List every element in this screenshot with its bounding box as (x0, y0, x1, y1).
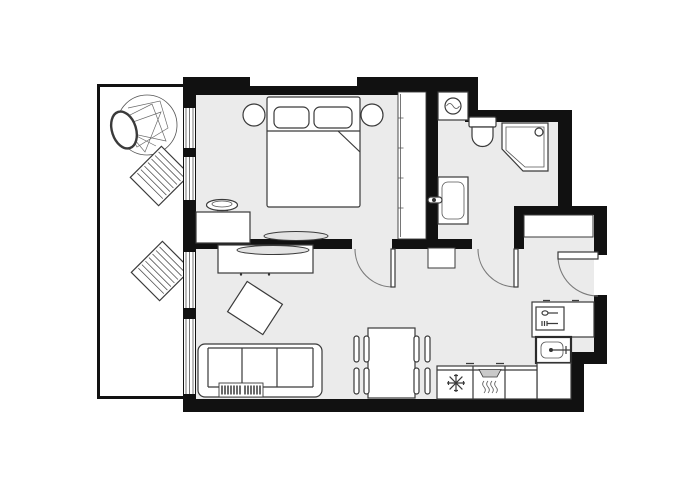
shoe-cabinet (428, 248, 455, 268)
wall-right-step (571, 352, 607, 364)
wall-top-1 (183, 77, 250, 95)
wall-bottom (183, 399, 584, 412)
potted-tree (107, 95, 177, 155)
hall-cabinet (524, 215, 593, 237)
counter-right (537, 363, 571, 399)
wall-right-above-entry (594, 215, 607, 255)
wall-bathroom-west (426, 92, 438, 244)
wall-top-2 (250, 86, 357, 95)
bedside-lamp-left (243, 104, 265, 126)
sun-lounger-top (130, 146, 189, 205)
bedside-lamp-right (361, 104, 383, 126)
wall-right-lower (571, 364, 584, 400)
wall-jamb-block (514, 208, 524, 249)
bedroom-tv (264, 232, 328, 241)
balcony-balustrade (97, 86, 183, 399)
bedroom-door-leaf (391, 249, 395, 287)
washing-machine (438, 92, 468, 120)
window-mullion (184, 308, 195, 319)
wall-right-below-entry (594, 295, 607, 352)
extractor-hood (479, 370, 501, 378)
window-mullion (184, 148, 195, 157)
sun-lounger-bottom (131, 241, 190, 300)
dresser (196, 212, 250, 243)
wall-right-upper (558, 110, 572, 212)
dishwasher-unit (532, 301, 594, 338)
fridge-freezer-icon (447, 374, 465, 392)
bedroom-window (184, 108, 195, 200)
pillow-left (274, 107, 309, 128)
entrance-door-leaf (558, 252, 598, 259)
living-window (184, 252, 195, 394)
living-tv (237, 246, 309, 255)
radiator (219, 383, 263, 397)
kitchen-sink (536, 337, 571, 363)
pillow-right (314, 107, 352, 128)
counter-bottom (437, 364, 537, 400)
wall-hall-top (514, 206, 607, 215)
bathroom-door-opening (472, 239, 514, 249)
dining-table (368, 328, 415, 398)
floor-plan-canvas (0, 0, 700, 500)
built-in-wardrobe (398, 92, 426, 239)
plant-decor (207, 200, 238, 211)
bathroom-door-leaf (514, 249, 518, 287)
bedroom-door-opening (352, 239, 393, 249)
balcony (97, 86, 191, 399)
